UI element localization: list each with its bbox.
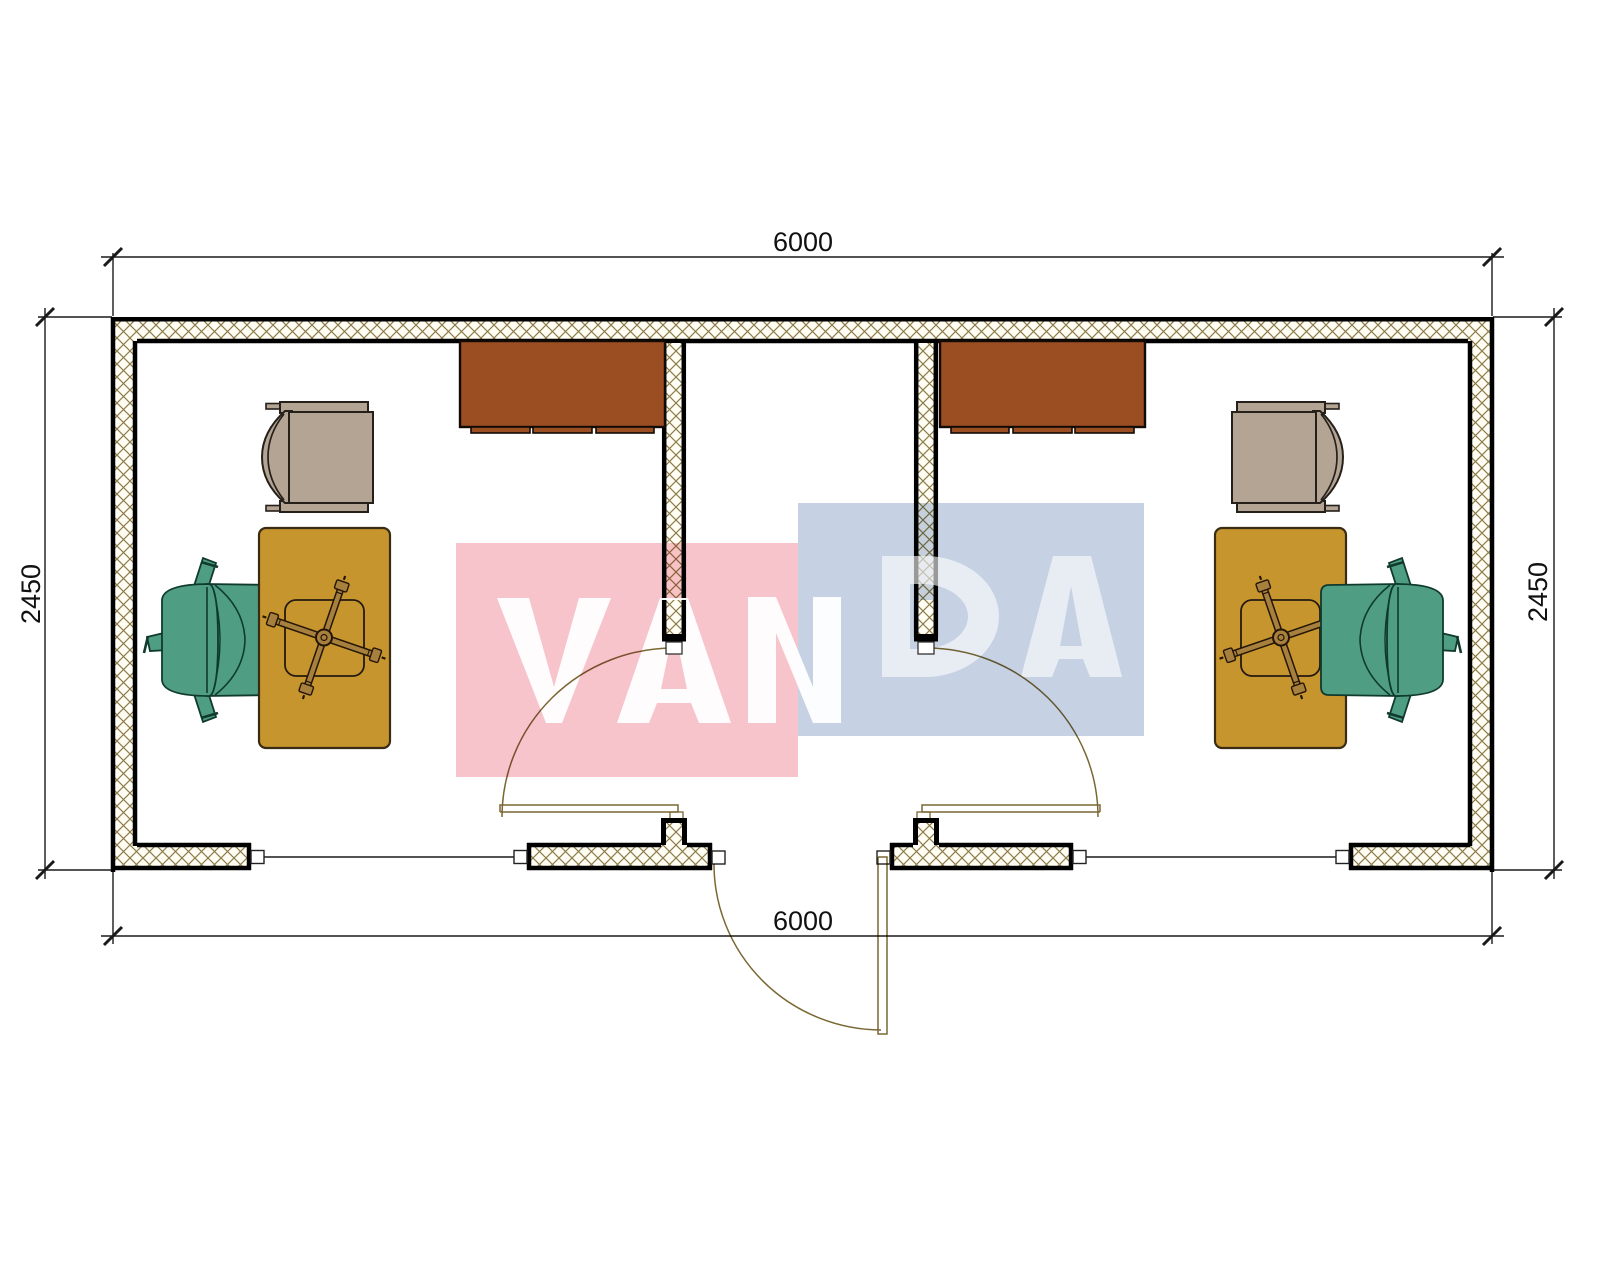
svg-text:2450: 2450: [1523, 562, 1553, 622]
svg-text:2450: 2450: [16, 564, 46, 624]
svg-text:6000: 6000: [773, 906, 833, 936]
svg-text:6000: 6000: [773, 227, 833, 257]
